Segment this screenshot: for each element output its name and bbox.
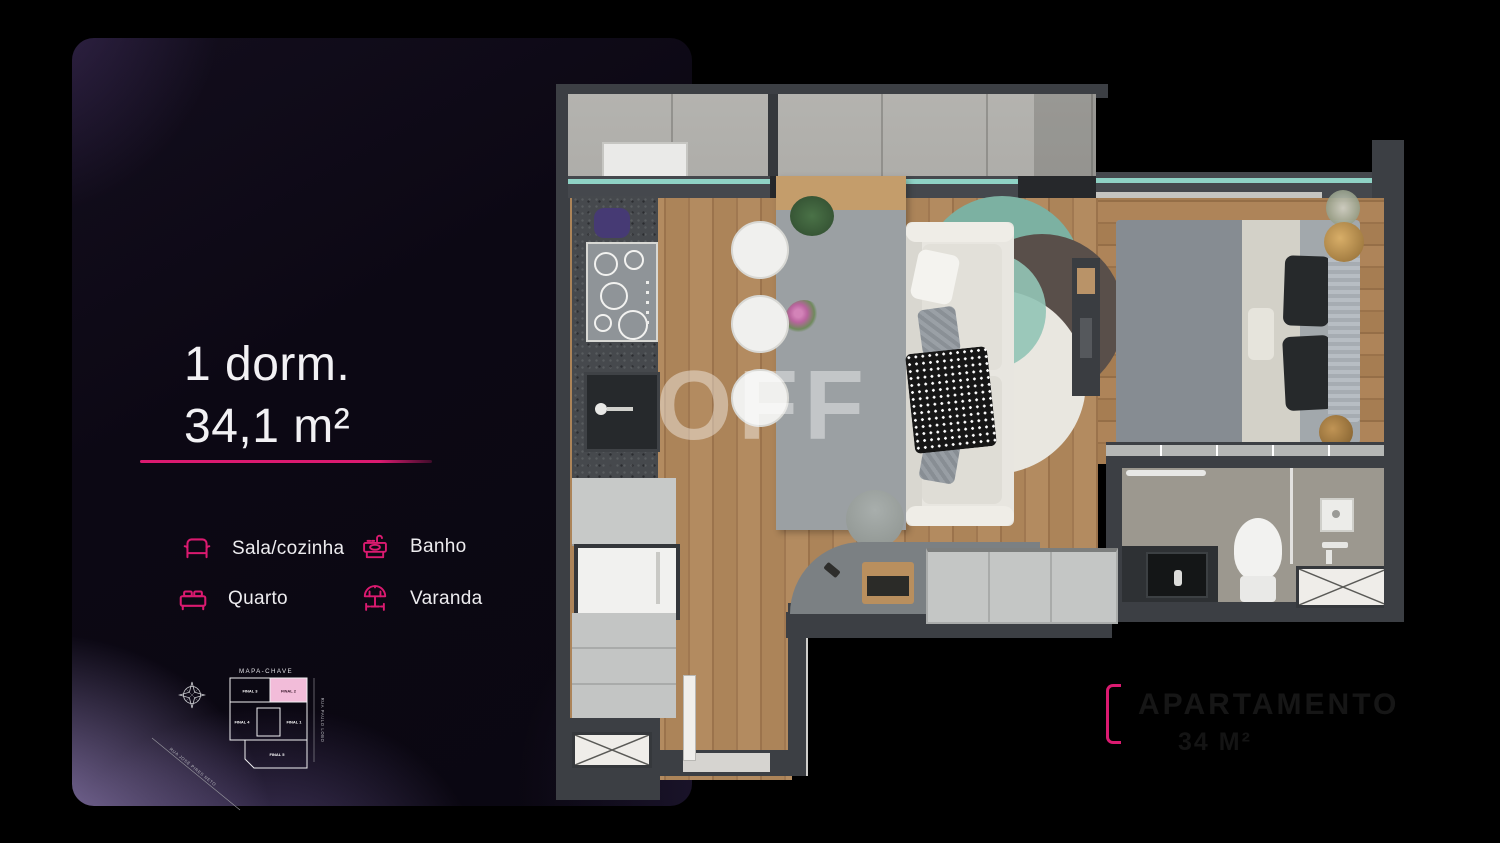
bathroom-vanity bbox=[1122, 546, 1218, 602]
sofa-throw-blanket bbox=[905, 346, 997, 454]
dining-chair-1 bbox=[731, 221, 789, 279]
duct-shaft-bathroom bbox=[1296, 566, 1390, 608]
sofa-armrest-top bbox=[906, 222, 1014, 242]
island-flowers bbox=[785, 300, 823, 338]
sideboard bbox=[926, 548, 1118, 624]
bed-pillow-1 bbox=[1283, 255, 1331, 327]
entry-threshold bbox=[683, 753, 770, 772]
towel-bar bbox=[1126, 470, 1206, 476]
cabinet-seam-2 bbox=[572, 683, 676, 685]
shower-fixture-pipe bbox=[1326, 550, 1332, 564]
fridge-handle bbox=[656, 552, 660, 604]
sink-faucet bbox=[1174, 570, 1182, 586]
laptop bbox=[862, 562, 914, 604]
street-label-right: RUA PAULO LOBO bbox=[320, 698, 325, 743]
unit-label-final1: FINAL 1 bbox=[286, 720, 302, 725]
laptop-keyboard bbox=[867, 576, 909, 596]
sideboard-seam-1 bbox=[988, 552, 990, 622]
unit-title-line1: 1 dorm. bbox=[184, 334, 350, 396]
unit-label-final4: FINAL 4 bbox=[234, 720, 250, 725]
bed-icon bbox=[176, 584, 210, 614]
bed-blanket bbox=[1116, 220, 1244, 444]
legend-label-varanda: Varanda bbox=[410, 588, 483, 610]
street-line-left bbox=[152, 738, 240, 810]
accent-divider bbox=[140, 460, 432, 463]
bed bbox=[1116, 220, 1360, 444]
legend-item-sala: Sala/cozinha bbox=[180, 532, 344, 566]
compass-rose-icon bbox=[180, 682, 205, 708]
toilet bbox=[1234, 518, 1282, 602]
fridge bbox=[574, 544, 680, 620]
burner-1 bbox=[594, 252, 618, 276]
desk-phone bbox=[823, 562, 840, 578]
caption-line1: APARTAMENTO bbox=[1138, 688, 1399, 722]
tv-screen bbox=[1080, 318, 1092, 358]
unit-label-final3: FINAL 3 bbox=[242, 689, 258, 694]
cabinet-seam-1 bbox=[572, 647, 676, 649]
legend-item-varanda: Varanda bbox=[358, 582, 483, 616]
bed-headboard bbox=[1328, 244, 1360, 422]
oven bbox=[584, 372, 660, 452]
oven-handle-knob bbox=[595, 403, 607, 415]
kitchen-cabinet-upper bbox=[572, 478, 676, 546]
unit-title: 1 dorm. 34,1 m² bbox=[184, 334, 350, 458]
cooktop bbox=[586, 242, 658, 342]
balcony-shaded-section bbox=[1034, 94, 1096, 178]
unit-title-line2: 34,1 m² bbox=[184, 396, 350, 458]
shower-glass-partition bbox=[1290, 468, 1293, 564]
shower-fixture bbox=[1322, 542, 1348, 548]
legend-item-quarto: Quarto bbox=[176, 582, 288, 616]
legend-label-sala: Sala/cozinha bbox=[232, 538, 344, 560]
burner-5 bbox=[618, 310, 648, 340]
legend-label-quarto: Quarto bbox=[228, 588, 288, 610]
duct-shaft-entry bbox=[572, 732, 652, 768]
window-glass-bedroom bbox=[1096, 178, 1386, 183]
burner-3 bbox=[600, 282, 628, 310]
oven-handle-lever bbox=[607, 407, 633, 411]
page: 1 dorm. 34,1 m² Sala/cozinha Banho bbox=[0, 0, 1500, 843]
x-cross-icon bbox=[1299, 569, 1387, 605]
burner-2 bbox=[624, 250, 644, 270]
shower-head-nozzle bbox=[1332, 510, 1340, 518]
washbasin-icon bbox=[358, 532, 392, 562]
tv-console-wood bbox=[1077, 268, 1095, 294]
balcony-divider-wall bbox=[768, 94, 778, 178]
kitchen-cabinet-lower bbox=[572, 613, 676, 718]
x-cross-icon bbox=[575, 735, 649, 765]
watermark: OFF bbox=[656, 342, 870, 469]
burner-4 bbox=[594, 314, 612, 332]
nightstand-top bbox=[1324, 222, 1364, 262]
legend-item-banho: Banho bbox=[358, 530, 466, 564]
desk-chair bbox=[846, 490, 904, 548]
bedroom-plant bbox=[1326, 190, 1360, 226]
sideboard-seam-2 bbox=[1050, 552, 1052, 622]
kettle bbox=[594, 208, 630, 238]
legend-label-banho: Banho bbox=[410, 536, 466, 558]
sofa-icon bbox=[180, 534, 214, 564]
parasol-icon bbox=[358, 584, 392, 614]
caption-bracket bbox=[1106, 684, 1121, 744]
sofa-armrest-bottom bbox=[906, 506, 1014, 526]
shower-head bbox=[1320, 498, 1354, 532]
wall-right bbox=[1384, 140, 1404, 622]
bed-pad bbox=[1248, 308, 1274, 360]
unit-label-final2: FINAL 2 bbox=[281, 689, 297, 694]
cooktop-knobs bbox=[646, 274, 649, 324]
toilet-tank bbox=[1240, 576, 1276, 602]
caption-line2: 34 M² bbox=[1178, 728, 1252, 757]
tv-console bbox=[1072, 258, 1100, 396]
unit-label-final5: FINAL 5 bbox=[269, 752, 285, 757]
street-label-left: RUA JOSÉ PIRES NETO bbox=[169, 746, 218, 787]
balcony-bench bbox=[602, 142, 688, 180]
bed-pillow-2 bbox=[1282, 335, 1334, 411]
entry-door-leaf bbox=[683, 675, 696, 761]
map-key-title: MAPA-CHAVE bbox=[239, 668, 293, 675]
map-key: MAPA-CHAVE FINAL 3 FINAL 2 FINAL 4 FINAL… bbox=[136, 656, 356, 822]
island-plant bbox=[790, 196, 834, 236]
window-frame bbox=[1018, 176, 1096, 198]
toilet-bowl bbox=[1234, 518, 1282, 580]
